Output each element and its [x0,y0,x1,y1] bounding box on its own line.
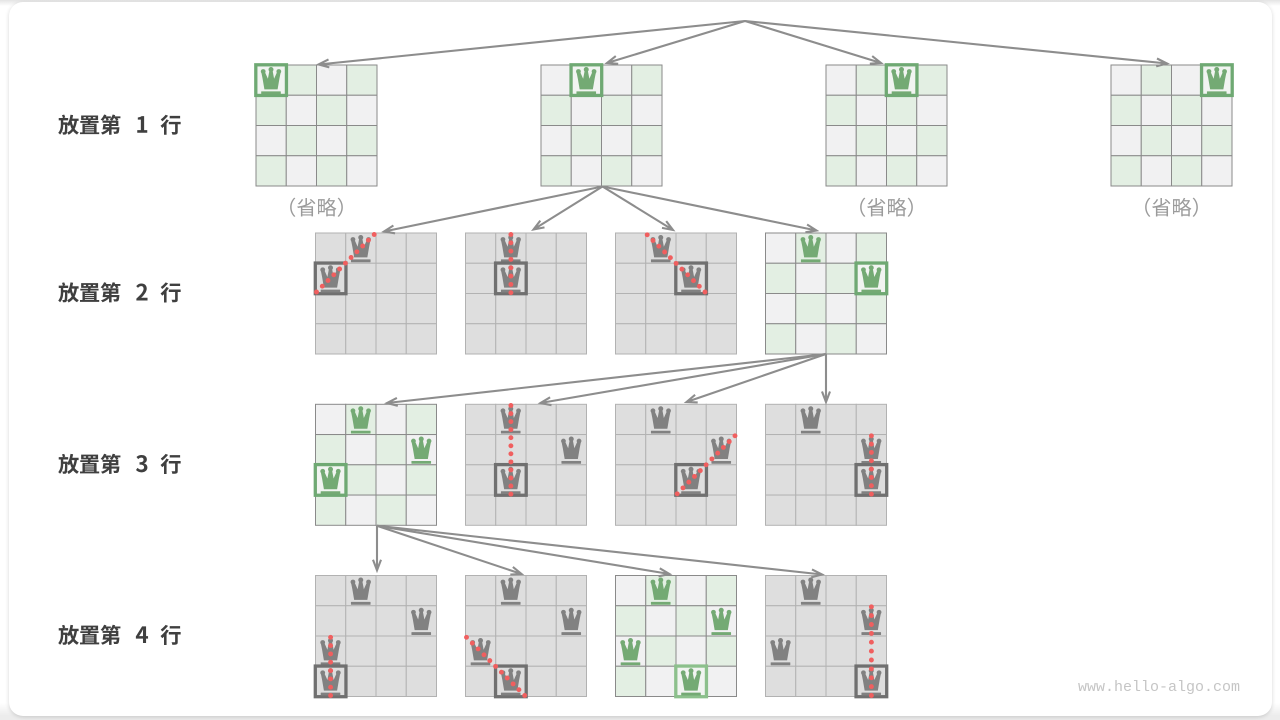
svg-text:www.hello-algo.com: www.hello-algo.com [1078,679,1240,696]
